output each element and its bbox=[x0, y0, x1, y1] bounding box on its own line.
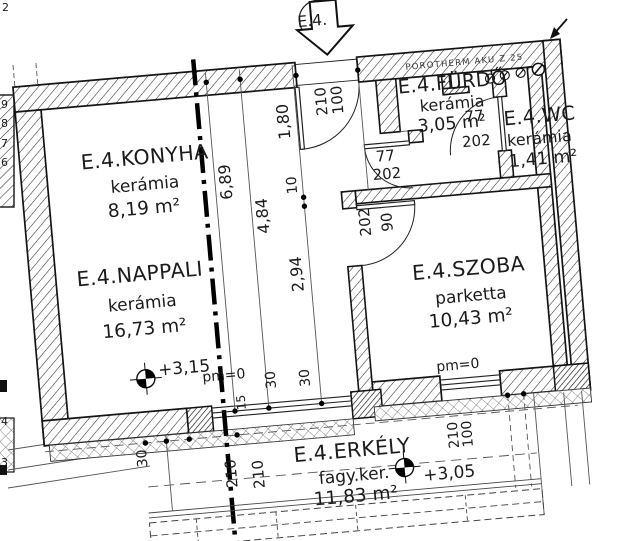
dim-210b: 210 bbox=[248, 459, 268, 489]
room-label-furdo: E.4.FÜRDŐ kerámia 3,05 m² bbox=[397, 65, 511, 138]
floorplan-canvas: 9 8 7 6 4 3 2 bbox=[0, 0, 620, 541]
room-finish: kerámia bbox=[107, 291, 177, 317]
szoba-window bbox=[440, 375, 501, 390]
unit-tag: E.4. bbox=[295, 0, 356, 57]
dim-b: 2,94 bbox=[286, 256, 308, 293]
room-area: 10,43 m² bbox=[428, 305, 514, 333]
entry-door-height: 210 bbox=[311, 86, 331, 116]
room-name: E.4.NAPPALI bbox=[76, 256, 204, 291]
dim-total: 6,89 bbox=[214, 163, 236, 200]
room-label-nappali: E.4.NAPPALI kerámia 16,73 m² bbox=[76, 256, 209, 345]
floorplan-svg: 9 8 7 6 4 3 2 bbox=[0, 0, 620, 541]
furdo-door-height: 202 bbox=[372, 164, 402, 184]
corner-arrow-icon bbox=[550, 19, 567, 39]
plan-group: +3,15 +3,05 E.4. POROTHERM AKU Z 25 E.4.… bbox=[8, 0, 610, 541]
room-label-szoba: E.4.SZOBA parketta 10,43 m² bbox=[411, 251, 530, 334]
room-name: E.4.SZOBA bbox=[411, 251, 526, 285]
dim-15: 15 bbox=[234, 394, 249, 410]
szoba-door-width: 90 bbox=[377, 212, 397, 233]
dim-30b: 30 bbox=[297, 368, 314, 387]
edge-digit: 3 bbox=[1, 456, 8, 469]
room-name: E.4.KONYHA bbox=[80, 139, 209, 174]
room-area: 16,73 m² bbox=[102, 315, 188, 343]
edge-digit: 7 bbox=[1, 137, 8, 150]
unit-label: E.4. bbox=[297, 11, 328, 32]
wc-door-width: 77 bbox=[464, 106, 485, 126]
edge-digit: 8 bbox=[1, 117, 8, 130]
edge-digit: 9 bbox=[1, 98, 8, 111]
edge-digit: 4 bbox=[1, 415, 8, 428]
szoba-door-height: 202 bbox=[355, 207, 375, 237]
dim-small: 10 bbox=[284, 176, 301, 195]
wc-door-height: 202 bbox=[461, 131, 491, 151]
pm0-left: pm=0 bbox=[202, 366, 246, 386]
room-finish: kerámia bbox=[110, 172, 180, 198]
room-label-wc: E.4.WC kerámia 1,41 m² bbox=[503, 101, 580, 172]
room-label-konyha: E.4.KONYHA kerámia 8,19 m² bbox=[80, 139, 214, 224]
szoba-window-height: 210 bbox=[445, 421, 463, 449]
dim-30c: 30 bbox=[134, 449, 151, 468]
level-marker-nappali: +3,15 bbox=[128, 356, 212, 396]
dim-210a: 210 bbox=[221, 459, 241, 489]
edge-digit: 6 bbox=[1, 156, 8, 169]
corner-digit: 2 bbox=[2, 1, 9, 14]
nappali-window bbox=[212, 396, 352, 418]
room-area: 8,19 m² bbox=[107, 195, 181, 222]
dim-30a: 30 bbox=[263, 370, 280, 389]
furdo-door-width: 77 bbox=[375, 146, 396, 166]
dim-c: 1,80 bbox=[272, 103, 294, 140]
level-value: +3,05 bbox=[422, 461, 476, 485]
dim-a: 4,84 bbox=[252, 197, 274, 234]
pm0-right: pm=0 bbox=[436, 356, 480, 376]
